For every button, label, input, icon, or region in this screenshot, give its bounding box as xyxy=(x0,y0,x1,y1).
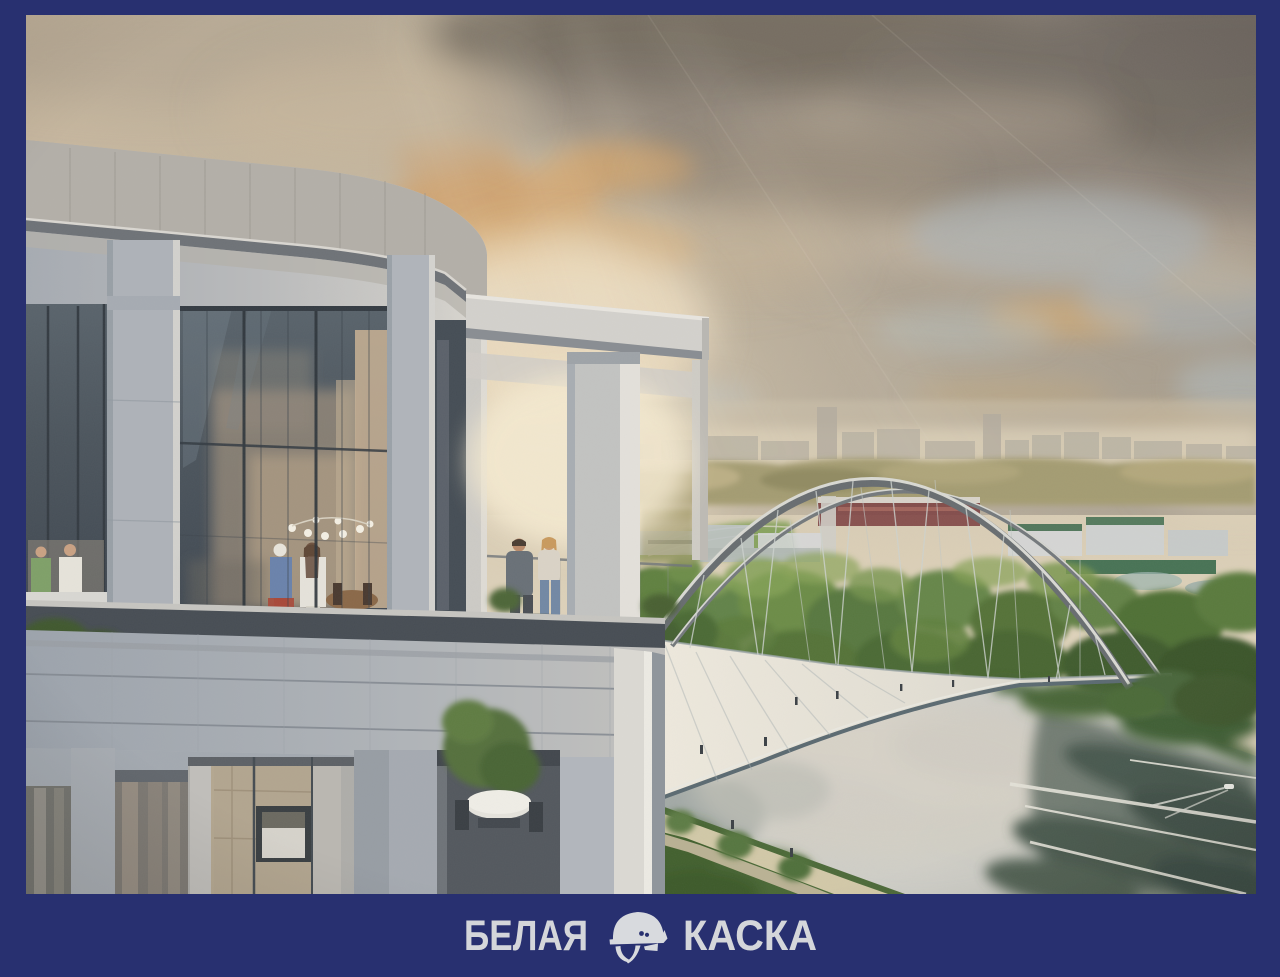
svg-text:КАСКА: КАСКА xyxy=(683,912,817,960)
svg-text:БЕЛАЯ: БЕЛАЯ xyxy=(464,912,588,960)
